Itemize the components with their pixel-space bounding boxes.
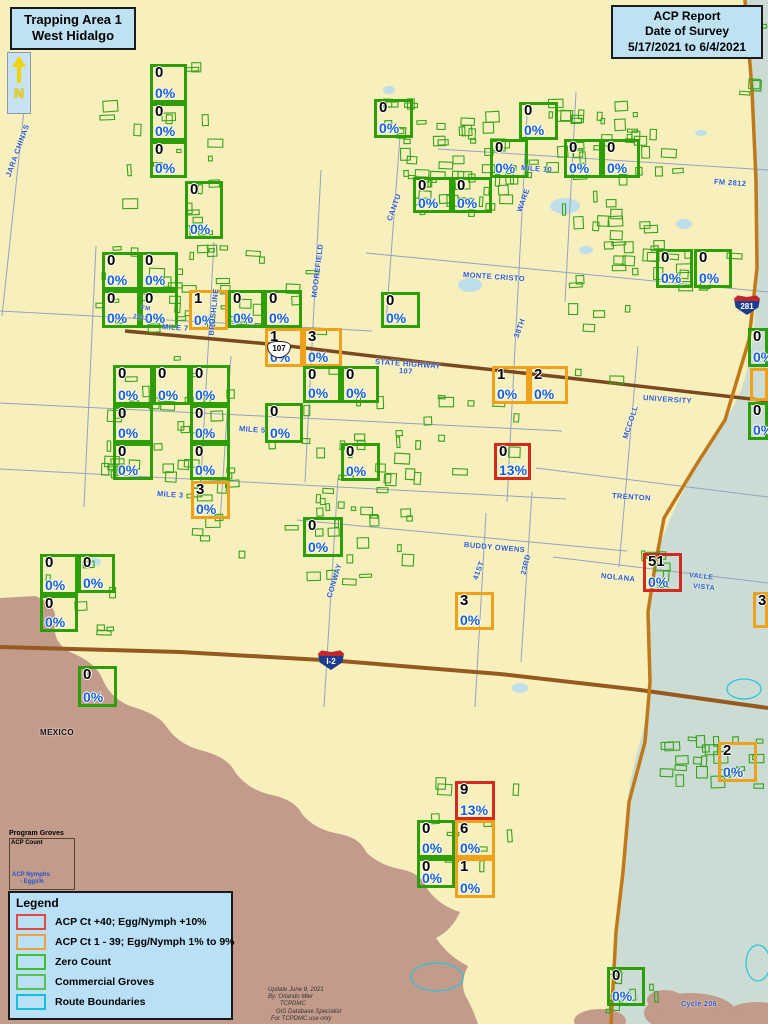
area-title-box: Trapping Area 1 West Hidalgo [10, 7, 136, 50]
acp-count-label: ACP Count [10, 839, 74, 846]
compass-north-label: N [8, 85, 30, 101]
road-label: 23RD [519, 553, 533, 575]
legend-item: Zero Count [16, 954, 225, 970]
road-label: 41ST [471, 560, 486, 581]
legend-swatch [16, 974, 46, 990]
road-label: MILE 5 [239, 424, 266, 435]
program-groves-key: ACP Count ACP Nymphs - Eggs% [9, 838, 75, 890]
road-label: BRUSHLINE [207, 288, 221, 336]
credit-line: TCPDMC [268, 1001, 341, 1008]
road-label: BUDDY OWENS [464, 540, 526, 554]
road-label: MONTE CRISTO [463, 270, 526, 283]
road-label: VALLE [689, 572, 714, 582]
credit-line: For TCPDMC use only [268, 1016, 341, 1023]
road-label: FM [140, 305, 150, 313]
legend-label: ACP Ct +40; Egg/Nymph +10% [55, 916, 207, 928]
legend-label: Zero Count [55, 956, 111, 968]
us-route-shield: 107 [267, 341, 291, 358]
legend-items: ACP Ct +40; Egg/Nymph +10%ACP Ct 1 - 39;… [16, 914, 225, 1010]
legend-item: Commercial Groves [16, 974, 225, 990]
legend-swatch [16, 914, 46, 930]
road-label: CANTU [385, 192, 403, 222]
legend-label: ACP Ct 1 - 39; Egg/Nymph 1% to 9% [55, 936, 235, 948]
road-label: UNIVERSITY [643, 393, 693, 405]
road-label: 38TH [512, 317, 527, 339]
road-label: MEXICO [40, 728, 74, 737]
credit-line: GIS Database Specialist [268, 1009, 341, 1016]
report-line3: 5/17/2021 to 6/4/2021 [614, 40, 760, 55]
road-label: CONWAY [325, 562, 344, 599]
legend-swatch [16, 994, 46, 1010]
road-label: JARA CHINAS [4, 123, 31, 178]
report-line2: Date of Survey [614, 24, 760, 39]
road-label: MILE 3 [157, 489, 184, 500]
interstate-shield: 281 [734, 295, 760, 315]
legend: Legend ACP Ct +40; Egg/Nymph +10%ACP Ct … [8, 891, 233, 1020]
area-title-line2: West Hidalgo [14, 28, 132, 44]
interstate-shield: I-2 [318, 650, 344, 670]
road-label: 107 [399, 366, 413, 376]
road-label: WARE [515, 187, 532, 213]
road-label: MILE 7 [162, 322, 189, 333]
legend-swatch [16, 954, 46, 970]
road-label: VISTA [693, 583, 716, 592]
road-label: NOLANA [601, 571, 636, 584]
credits-block: Update June 8, 2021By: Orlando MierTCPDM… [268, 987, 341, 1023]
road-label: FM 2812 [714, 177, 747, 188]
legend-item: ACP Ct 1 - 39; Egg/Nymph 1% to 9% [16, 934, 225, 950]
report-title-box: ACP Report Date of Survey 5/17/2021 to 6… [611, 5, 763, 59]
compass: N [7, 52, 31, 114]
legend-item: ACP Ct +40; Egg/Nymph +10% [16, 914, 225, 930]
program-groves-box: Program Groves ACP Count ACP Nymphs - Eg… [9, 830, 75, 890]
area-title-line1: Trapping Area 1 [14, 12, 132, 28]
legend-item: Route Boundaries [16, 994, 225, 1010]
road-label: Cycle 206 [681, 1001, 717, 1008]
legend-label: Route Boundaries [55, 996, 145, 1008]
credit-line: Update June 8, 2021 [268, 987, 341, 994]
acp-nymphs-label: ACP Nymphs - Eggs% [12, 872, 50, 886]
legend-label: Commercial Groves [55, 976, 154, 988]
credit-line: By: Orlando Mier [268, 994, 341, 1001]
north-arrow-icon [8, 56, 30, 83]
road-label: 2221 [132, 314, 148, 323]
road-label: MOOREFIELD [310, 243, 326, 298]
road-label: MILE 10 [521, 163, 553, 174]
map-report-page: 00%00%00%00%00%00%00%00%00%00%00%00%00%0… [0, 0, 768, 1024]
road-labels-layer: JARA CHINASMILE 7FM2221BRUSHLINEMOOREFIE… [0, 0, 768, 1024]
program-groves-title: Program Groves [9, 830, 75, 837]
legend-swatch [16, 934, 46, 950]
road-label: MCCOLL [621, 404, 640, 440]
legend-title: Legend [16, 896, 225, 910]
report-line1: ACP Report [614, 9, 760, 24]
road-label: TRENTON [612, 491, 651, 503]
